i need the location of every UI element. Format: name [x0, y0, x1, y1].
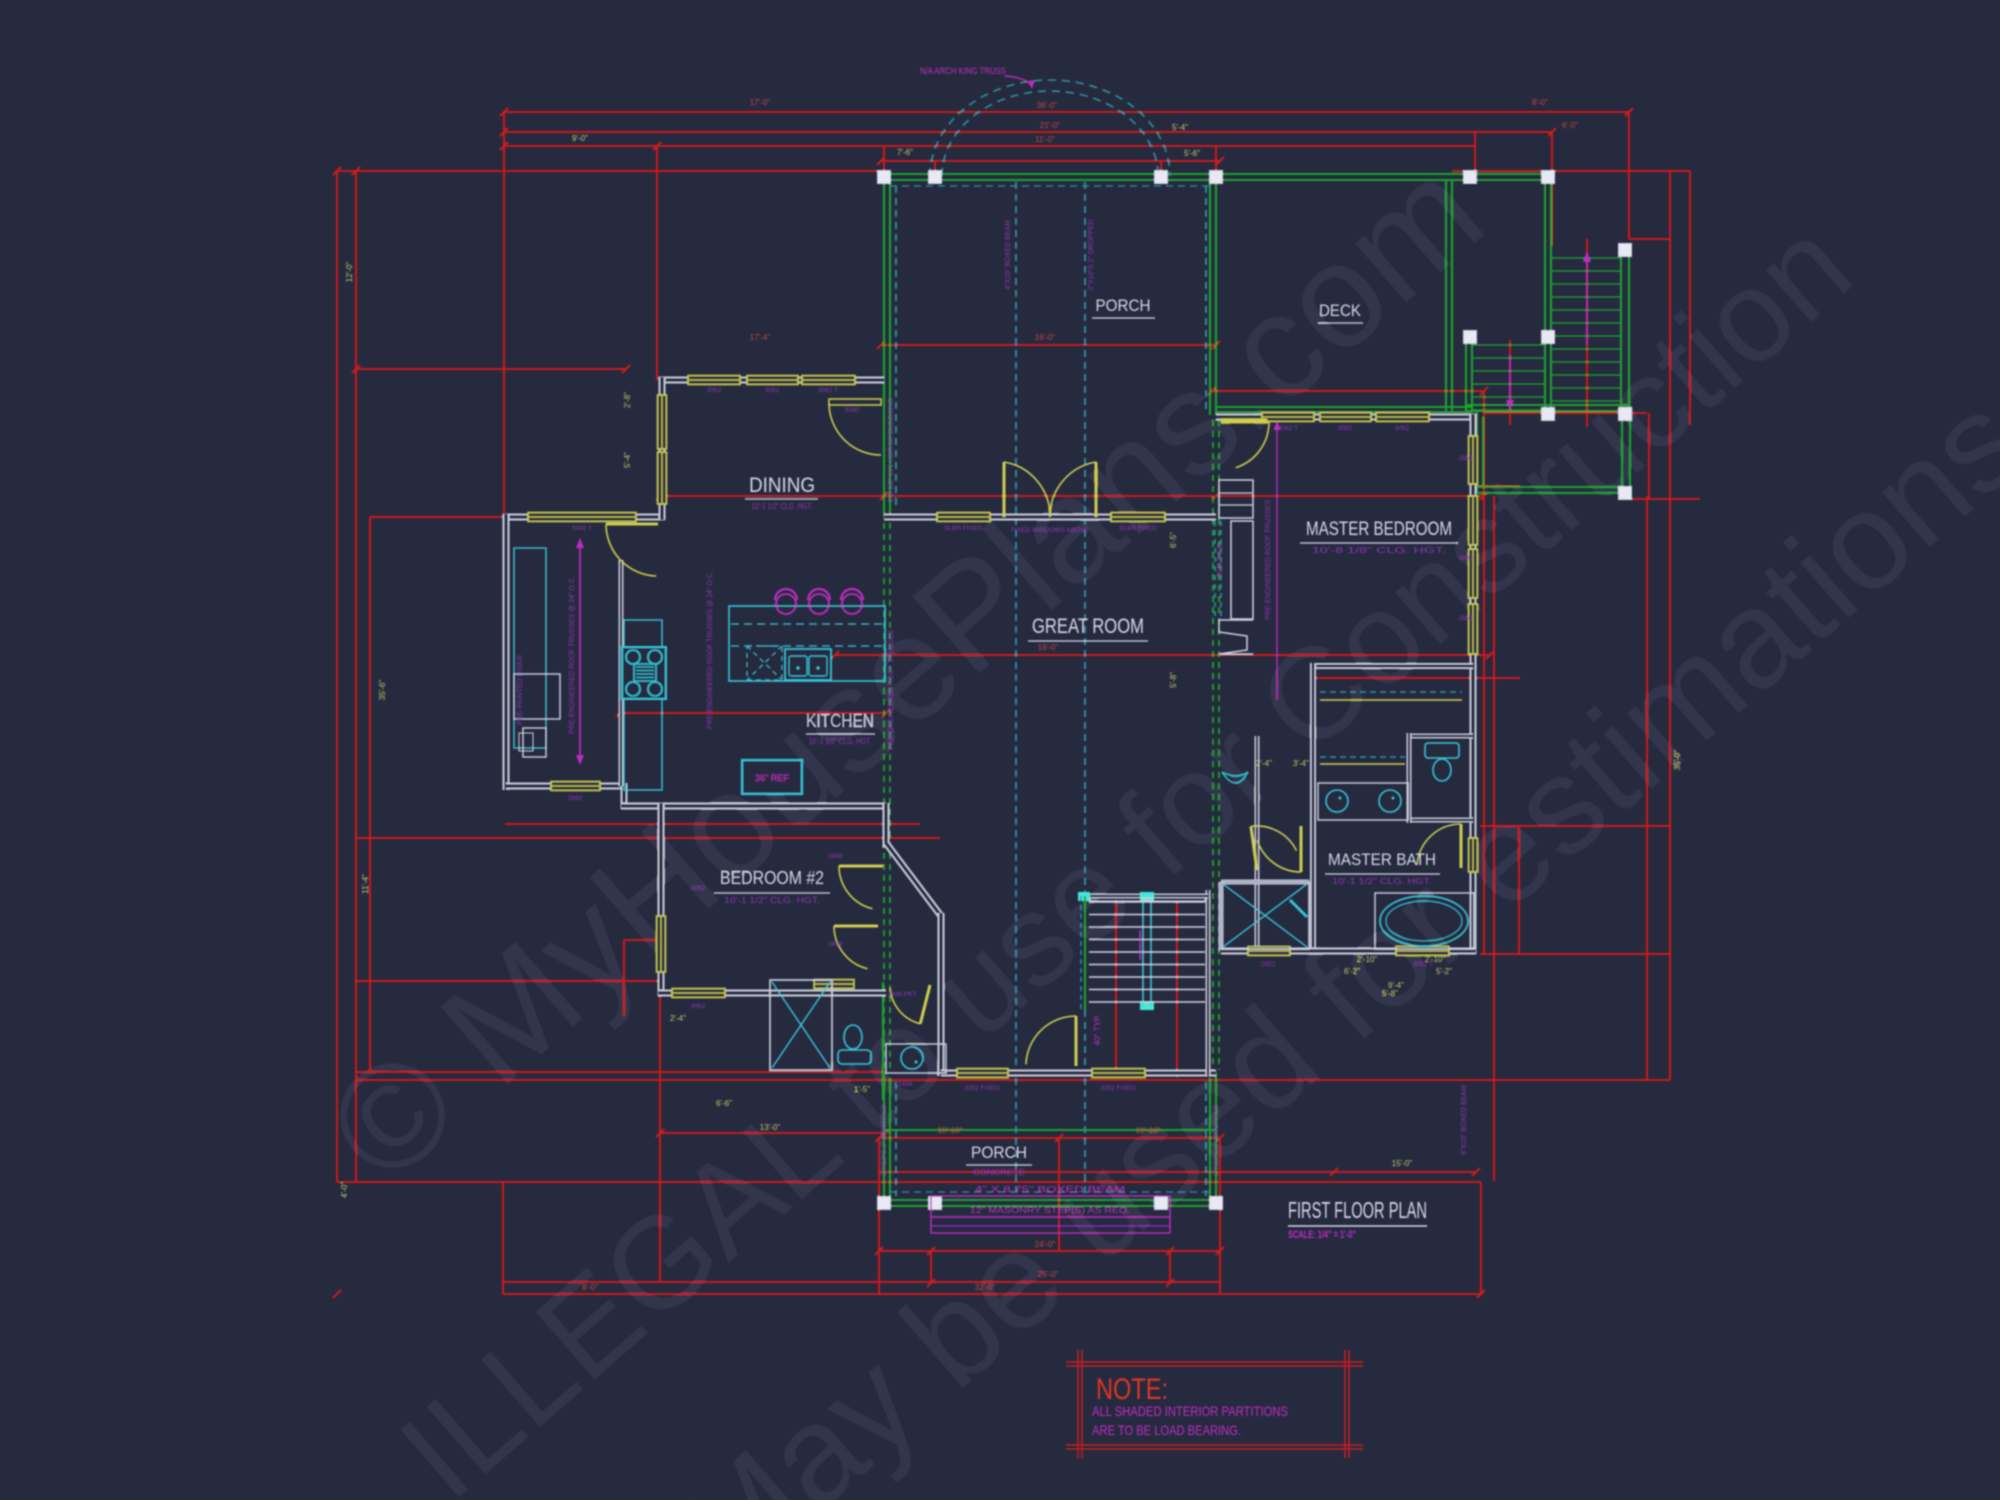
svg-text:10'-1 1/2" CLG. HGT.: 10'-1 1/2" CLG. HGT.	[809, 737, 872, 746]
svg-text:6'-2": 6'-2"	[1344, 967, 1360, 976]
svg-text:24'-0": 24'-0"	[1035, 1240, 1056, 1249]
svg-text:2852: 2852	[1459, 615, 1474, 622]
svg-text:6"X10" BOXED BEAM: 6"X10" BOXED BEAM	[1461, 1085, 1468, 1155]
svg-text:10'-1 1/2" CLG. HGT.: 10'-1 1/2" CLG. HGT.	[752, 502, 813, 511]
svg-text:36" REF: 36" REF	[755, 773, 789, 783]
svg-text:5'-8": 5'-8"	[1169, 672, 1178, 688]
svg-text:12" MASONRY STEP(S) AS REQ.: 12" MASONRY STEP(S) AS REQ.	[970, 1206, 1130, 1215]
svg-text:3'-4": 3'-4"	[1293, 759, 1309, 768]
svg-text:N/A ARCH KING TRUSS: N/A ARCH KING TRUSS	[920, 66, 1006, 77]
svg-text:1'-5": 1'-5"	[854, 1085, 870, 1094]
svg-text:DINING: DINING	[749, 474, 815, 497]
svg-text:3032: 3032	[1459, 555, 1474, 562]
svg-text:SCALE: 1/4" = 1'-0": SCALE: 1/4" = 1'-0"	[1288, 1229, 1356, 1241]
svg-text:32'-0": 32'-0"	[975, 1283, 996, 1292]
svg-text:2862: 2862	[568, 795, 583, 802]
svg-text:3052 FIXED: 3052 FIXED	[1100, 1085, 1136, 1092]
svg-text:8'-0": 8'-0"	[1532, 98, 1548, 107]
svg-text:13'-0": 13'-0"	[760, 1123, 781, 1132]
svg-text:MASTER BATH: MASTER BATH	[1328, 850, 1436, 869]
svg-text:35'-6": 35'-6"	[378, 680, 387, 701]
svg-text:PORCH: PORCH	[1096, 296, 1151, 315]
svg-text:4"X10" BOXED BEAM: 4"X10" BOXED BEAM	[1005, 220, 1012, 290]
svg-text:NOTE:: NOTE:	[1096, 1373, 1168, 1406]
svg-text:2"X10"S 2" DROPPED: 2"X10"S 2" DROPPED	[1088, 220, 1095, 291]
svg-text:ALL SHADED INTERIOR PARTITIONS: ALL SHADED INTERIOR PARTITIONS	[1092, 1403, 1288, 1419]
svg-text:5'-4": 5'-4"	[1172, 123, 1188, 132]
svg-text:SLBR FIXED: SLBR FIXED	[944, 525, 982, 532]
svg-text:8'-0": 8'-0"	[582, 1283, 598, 1292]
svg-text:3062: 3062	[691, 885, 706, 892]
svg-text:9'-0": 9'-0"	[572, 134, 588, 143]
svg-text:FIXED WINDOWS ABOVE: FIXED WINDOWS ABOVE	[1011, 527, 1089, 534]
svg-text:2'-10": 2'-10"	[1357, 955, 1378, 964]
svg-text:3062: 3062	[765, 387, 780, 394]
svg-text:2468 PKT: 2468 PKT	[888, 991, 917, 998]
svg-text:5'-8": 5'-8"	[1382, 989, 1398, 998]
svg-text:40° TYP.: 40° TYP.	[1093, 1015, 1102, 1046]
svg-text:2434: 2434	[898, 1081, 913, 1088]
svg-text:16'-0": 16'-0"	[1038, 643, 1059, 652]
svg-text:2'-4": 2'-4"	[670, 1014, 686, 1023]
svg-text:DECK: DECK	[1319, 301, 1362, 320]
svg-text:10'-1 1/2" CLG. HGT.: 10'-1 1/2" CLG. HGT.	[1332, 877, 1431, 886]
svg-text:5'-2": 5'-2"	[1436, 967, 1452, 976]
svg-text:FIRST FLOOR PLAN: FIRST FLOOR PLAN	[1288, 1197, 1427, 1223]
svg-text:PRE-ENGINEERED ROOF TRUSSES @: PRE-ENGINEERED ROOF TRUSSES @ 24" O.C.	[569, 576, 576, 734]
svg-text:2"X10"S 2" DROPPED: 2"X10"S 2" DROPPED	[1213, 1105, 1220, 1176]
svg-text:35'-0": 35'-0"	[1673, 750, 1682, 771]
svg-text:SLBR FIXED: SLBR FIXED	[1119, 525, 1157, 532]
svg-text:GREAT ROOM: GREAT ROOM	[1032, 615, 1144, 638]
svg-text:PORCH: PORCH	[971, 1143, 1027, 1162]
svg-text:3062: 3062	[1395, 425, 1410, 432]
svg-text:21'-0": 21'-0"	[1040, 121, 1061, 130]
svg-text:MASTER BEDROOM: MASTER BEDROOM	[1306, 519, 1452, 540]
svg-text:2"X10"S 2" DROPPED: 2"X10"S 2" DROPPED	[881, 1105, 888, 1176]
svg-text:6'-0": 6'-0"	[1562, 121, 1578, 130]
svg-text:3062 T: 3062 T	[818, 387, 838, 394]
svg-text:PRE-ENGINEERED ROOF TRUSSES: PRE-ENGINEERED ROOF TRUSSES	[1265, 500, 1272, 620]
svg-text:2'-4": 2'-4"	[1256, 759, 1272, 768]
svg-text:2868: 2868	[828, 941, 843, 948]
svg-text:ARE TO BE LOAD BEARING.: ARE TO BE LOAD BEARING.	[1092, 1422, 1241, 1438]
svg-text:PRE-ENGINEERED ROOF TRUSSES: PRE-ENGINEERED ROOF TRUSSES	[888, 630, 895, 750]
svg-text:BUILT-INS: BUILT-INS	[1217, 543, 1224, 576]
svg-text:CONCRETE: CONCRETE	[973, 1168, 1025, 1177]
svg-text:5040: 5040	[845, 407, 860, 414]
svg-text:3052 T: 3052 T	[1413, 961, 1433, 968]
svg-text:BEDROOM #2: BEDROOM #2	[720, 868, 824, 888]
svg-text:10'-1 1/2" CLG. HGT.: 10'-1 1/2" CLG. HGT.	[724, 896, 820, 905]
svg-text:2852: 2852	[1261, 961, 1276, 968]
svg-text:11'-0": 11'-0"	[1035, 135, 1055, 144]
svg-text:15'-0": 15'-0"	[1392, 1159, 1413, 1168]
svg-text:3062: 3062	[691, 1003, 706, 1010]
svg-text:3062: 3062	[707, 387, 722, 394]
svg-text:26'-0": 26'-0"	[1038, 1270, 1059, 1279]
svg-text:12'-0": 12'-0"	[345, 262, 354, 283]
svg-text:10'-10": 10'-10"	[1136, 1126, 1161, 1135]
svg-text:7'-6": 7'-6"	[897, 148, 913, 157]
svg-text:4" X 8.75" BOXED BEAM: 4" X 8.75" BOXED BEAM	[975, 1185, 1126, 1194]
svg-text:3052 FIXED: 3052 FIXED	[964, 1085, 1000, 1092]
svg-text:17'-0": 17'-0"	[750, 98, 771, 107]
svg-text:PRE-ENGINEERED ROOF TRUSSES @: PRE-ENGINEERED ROOF TRUSSES @ 24" O.C.	[707, 571, 714, 729]
svg-text:KITCHEN: KITCHEN	[806, 711, 874, 731]
svg-text:5'-4": 5'-4"	[623, 452, 632, 468]
svg-text:10'-10": 10'-10"	[938, 1126, 963, 1135]
svg-text:36'-0": 36'-0"	[1037, 101, 1058, 110]
svg-text:4'-0": 4'-0"	[340, 1182, 349, 1198]
svg-text:PRE-PAINTED RISER: PRE-PAINTED RISER	[517, 655, 524, 725]
svg-text:11'-4": 11'-4"	[361, 874, 370, 894]
svg-text:16'-0": 16'-0"	[1035, 333, 1056, 342]
svg-text:3062 T: 3062 T	[1278, 425, 1298, 432]
svg-text:17'-4": 17'-4"	[750, 333, 771, 342]
svg-text:2-9 1/2" LVL HDR W/ BLOCKING: 2-9 1/2" LVL HDR W/ BLOCKING	[888, 398, 895, 502]
svg-text:6'-5": 6'-5"	[1169, 532, 1178, 548]
svg-text:2'-8": 2'-8"	[623, 392, 632, 408]
svg-text:3062: 3062	[1338, 425, 1353, 432]
svg-text:2868: 2868	[828, 853, 843, 860]
svg-text:5040 T: 5040 T	[572, 525, 592, 532]
svg-text:6'-6": 6'-6"	[716, 1099, 732, 1108]
svg-text:2852: 2852	[1459, 455, 1474, 462]
svg-text:10'-8 1/8" CLG. HGT.: 10'-8 1/8" CLG. HGT.	[1312, 546, 1446, 555]
svg-text:5'-6": 5'-6"	[1184, 149, 1200, 158]
